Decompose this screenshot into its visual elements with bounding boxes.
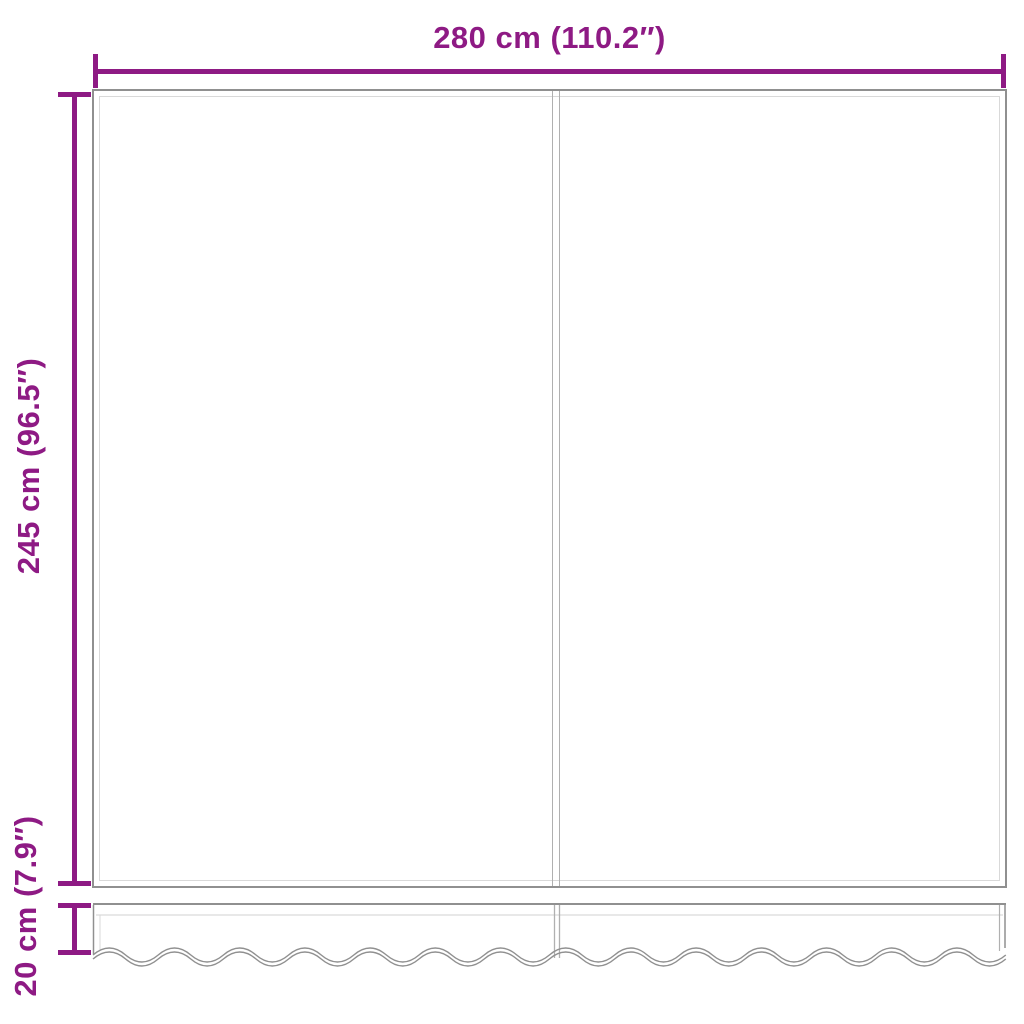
- width-dimension-cap-left: [93, 54, 98, 88]
- valance-dimension-cap-bottom: [58, 950, 91, 955]
- fabric-inner-stitch-line: [99, 96, 1000, 881]
- valance-dimension-line: [72, 906, 77, 953]
- fabric-panel: [92, 89, 1007, 888]
- height-dimension-line: [72, 94, 77, 883]
- valance-scallop-edge-outer: [93, 948, 1006, 962]
- width-dimension-line: [94, 69, 1005, 74]
- valance-scallop-edge-inner: [93, 952, 1006, 966]
- valance-height-dimension-label: 20 cm (7.9″): [5, 696, 47, 1024]
- height-dimension-cap-top: [58, 92, 91, 97]
- valance-dimension-cap-top: [58, 903, 91, 908]
- awning-fabric-dimension-diagram: 280 cm (110.2″) 245 cm (96.5″) 20 cm (7.…: [0, 0, 1024, 1024]
- height-dimension-label: 245 cm (96.5″): [8, 256, 50, 676]
- width-dimension-cap-right: [1001, 54, 1006, 88]
- width-dimension-label: 280 cm (110.2″): [92, 20, 1007, 56]
- fabric-center-seam: [552, 91, 560, 886]
- height-dimension-cap-bottom: [58, 881, 91, 886]
